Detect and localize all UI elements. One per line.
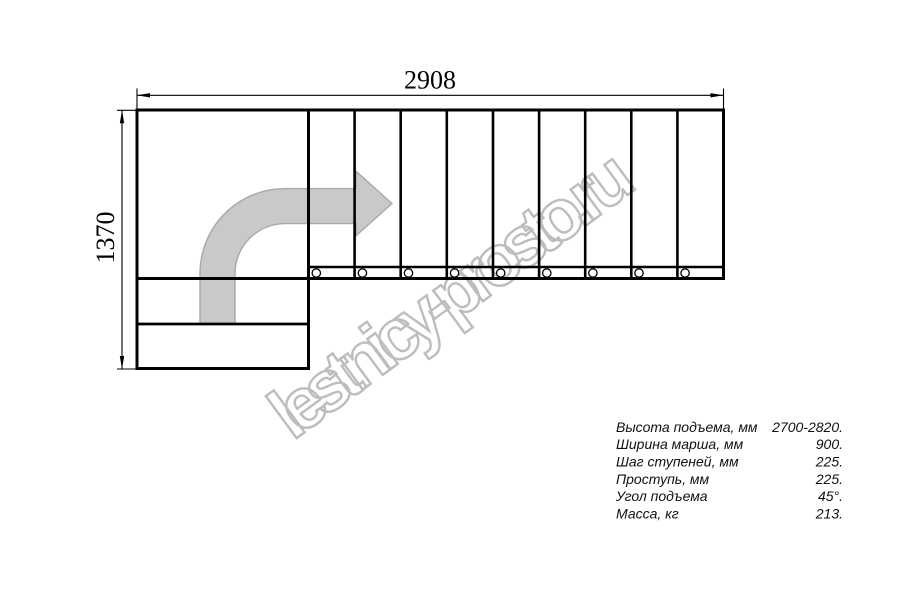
svg-text:Шаг ступеней, мм: Шаг ступеней, мм [616,453,739,469]
svg-text:2908: 2908 [404,66,456,95]
svg-text:45°.: 45°. [818,488,843,504]
svg-text:Ширина марша, мм: Ширина марша, мм [616,436,744,452]
svg-text:lestnicy-prosto.ru: lestnicy-prosto.ru [255,138,645,454]
svg-text:Высота подъема, мм: Высота подъема, мм [616,419,758,435]
svg-text:Угол подъема: Угол подъема [615,488,708,504]
svg-text:213.: 213. [815,505,843,521]
svg-text:225.: 225. [815,453,843,469]
svg-text:900.: 900. [816,436,843,452]
svg-text:Масса, кг: Масса, кг [616,505,679,521]
svg-text:225.: 225. [815,471,843,487]
svg-text:2700-2820.: 2700-2820. [771,419,843,435]
svg-text:1370: 1370 [91,212,120,264]
svg-text:Проступь, мм: Проступь, мм [616,471,710,487]
